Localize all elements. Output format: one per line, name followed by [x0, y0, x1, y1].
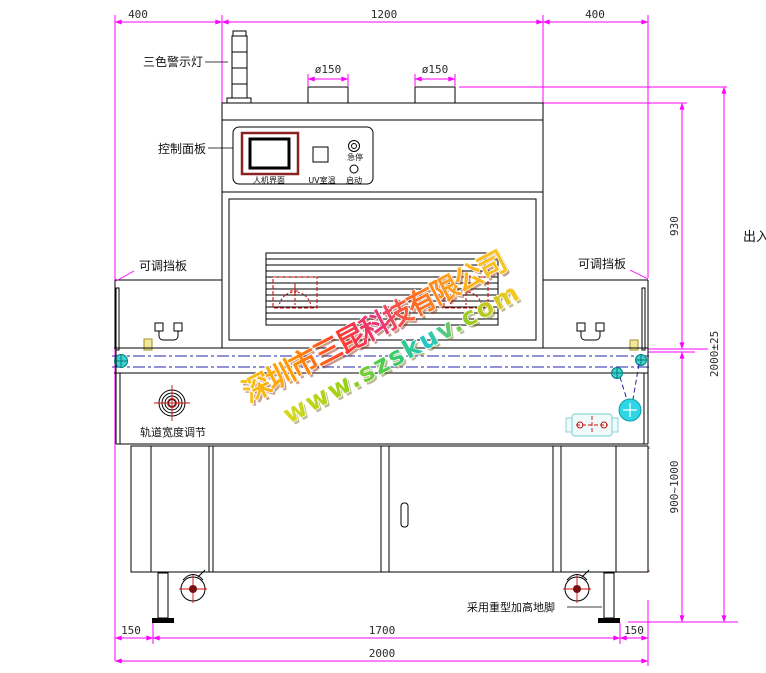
warning-light-yellow-segment	[232, 52, 247, 68]
track-width-handwheel	[154, 385, 190, 421]
dim-top-right: 400	[585, 8, 605, 21]
wing-right	[543, 280, 648, 348]
dim-top-left: 400	[128, 8, 148, 21]
warning-light-label: 三色警示灯	[143, 54, 203, 69]
dim-port-left: ø150	[315, 63, 342, 76]
wing-right-handle	[577, 323, 604, 340]
estop-label: 急停	[347, 152, 363, 162]
belt-drive	[566, 364, 641, 436]
exhaust-ports	[308, 87, 455, 103]
dim-port-right: ø150	[422, 63, 449, 76]
gear-motor	[566, 414, 618, 436]
dim-bottom-right: 150	[624, 624, 644, 637]
idler-pulley	[612, 368, 623, 379]
warning-light-base-plate	[227, 98, 251, 103]
outlet-label: 出入	[743, 230, 766, 245]
baffle-left-label: 可调挡板	[139, 259, 187, 273]
control-panel-label: 控制面板	[158, 142, 206, 156]
warning-light-green-segment	[232, 68, 247, 84]
uv-temp-label: UV室温	[308, 175, 335, 185]
drive-belt-lines	[620, 364, 639, 400]
leveling-foot-right	[598, 573, 620, 623]
uv-temp-meter	[313, 147, 328, 162]
dim-stand-height: 900~1000	[668, 461, 681, 514]
leveling-foot-left	[152, 573, 174, 623]
dim-top-center: 1200	[371, 8, 398, 21]
dim-overall-width: 2000	[369, 647, 396, 660]
dim-bottom-left: 150	[121, 624, 141, 637]
hmi-screen	[250, 139, 289, 168]
drive-pulley	[619, 399, 641, 421]
hood-top-cap	[222, 103, 543, 120]
wing-left-handle	[155, 323, 182, 340]
start-label: 启动	[346, 175, 362, 185]
dim-bottom-center: 1700	[369, 624, 396, 637]
baffle-right-label: 可调挡板	[578, 257, 626, 271]
wing-left-slot	[116, 288, 119, 350]
cabinet	[131, 446, 648, 572]
caster-left	[179, 570, 207, 603]
exhaust-port-left	[308, 87, 348, 103]
warning-light-tower	[227, 31, 251, 103]
exhaust-port-right	[415, 87, 455, 103]
control-panel: 人机界面 UV室温 急停 启动	[233, 127, 373, 185]
roller-right	[636, 355, 647, 366]
drawing-canvas: 400 1200 400 ø150 ø150 930 900~1000 2000…	[0, 0, 766, 673]
uv-machine-drawing: 400 1200 400 ø150 ø150 930 900~1000 2000…	[0, 0, 766, 673]
caster-right	[563, 570, 591, 603]
feet-and-casters	[152, 570, 620, 623]
feet-label: 采用重型加高地脚	[467, 600, 555, 614]
warning-light-red-segment	[232, 36, 247, 52]
dim-overall-height: 2000±25	[708, 331, 721, 377]
wing-left	[115, 280, 222, 348]
wing-right-slot	[642, 288, 645, 350]
dim-hood-height: 930	[668, 216, 681, 236]
warning-light-pole	[232, 84, 247, 98]
track-width-label: 轨道宽度调节	[140, 425, 206, 439]
baffle-right-leader	[630, 270, 648, 279]
hmi-label: 人机界面	[253, 175, 285, 185]
cabinet-door-handle	[401, 503, 408, 527]
warning-light-cap	[233, 31, 246, 36]
